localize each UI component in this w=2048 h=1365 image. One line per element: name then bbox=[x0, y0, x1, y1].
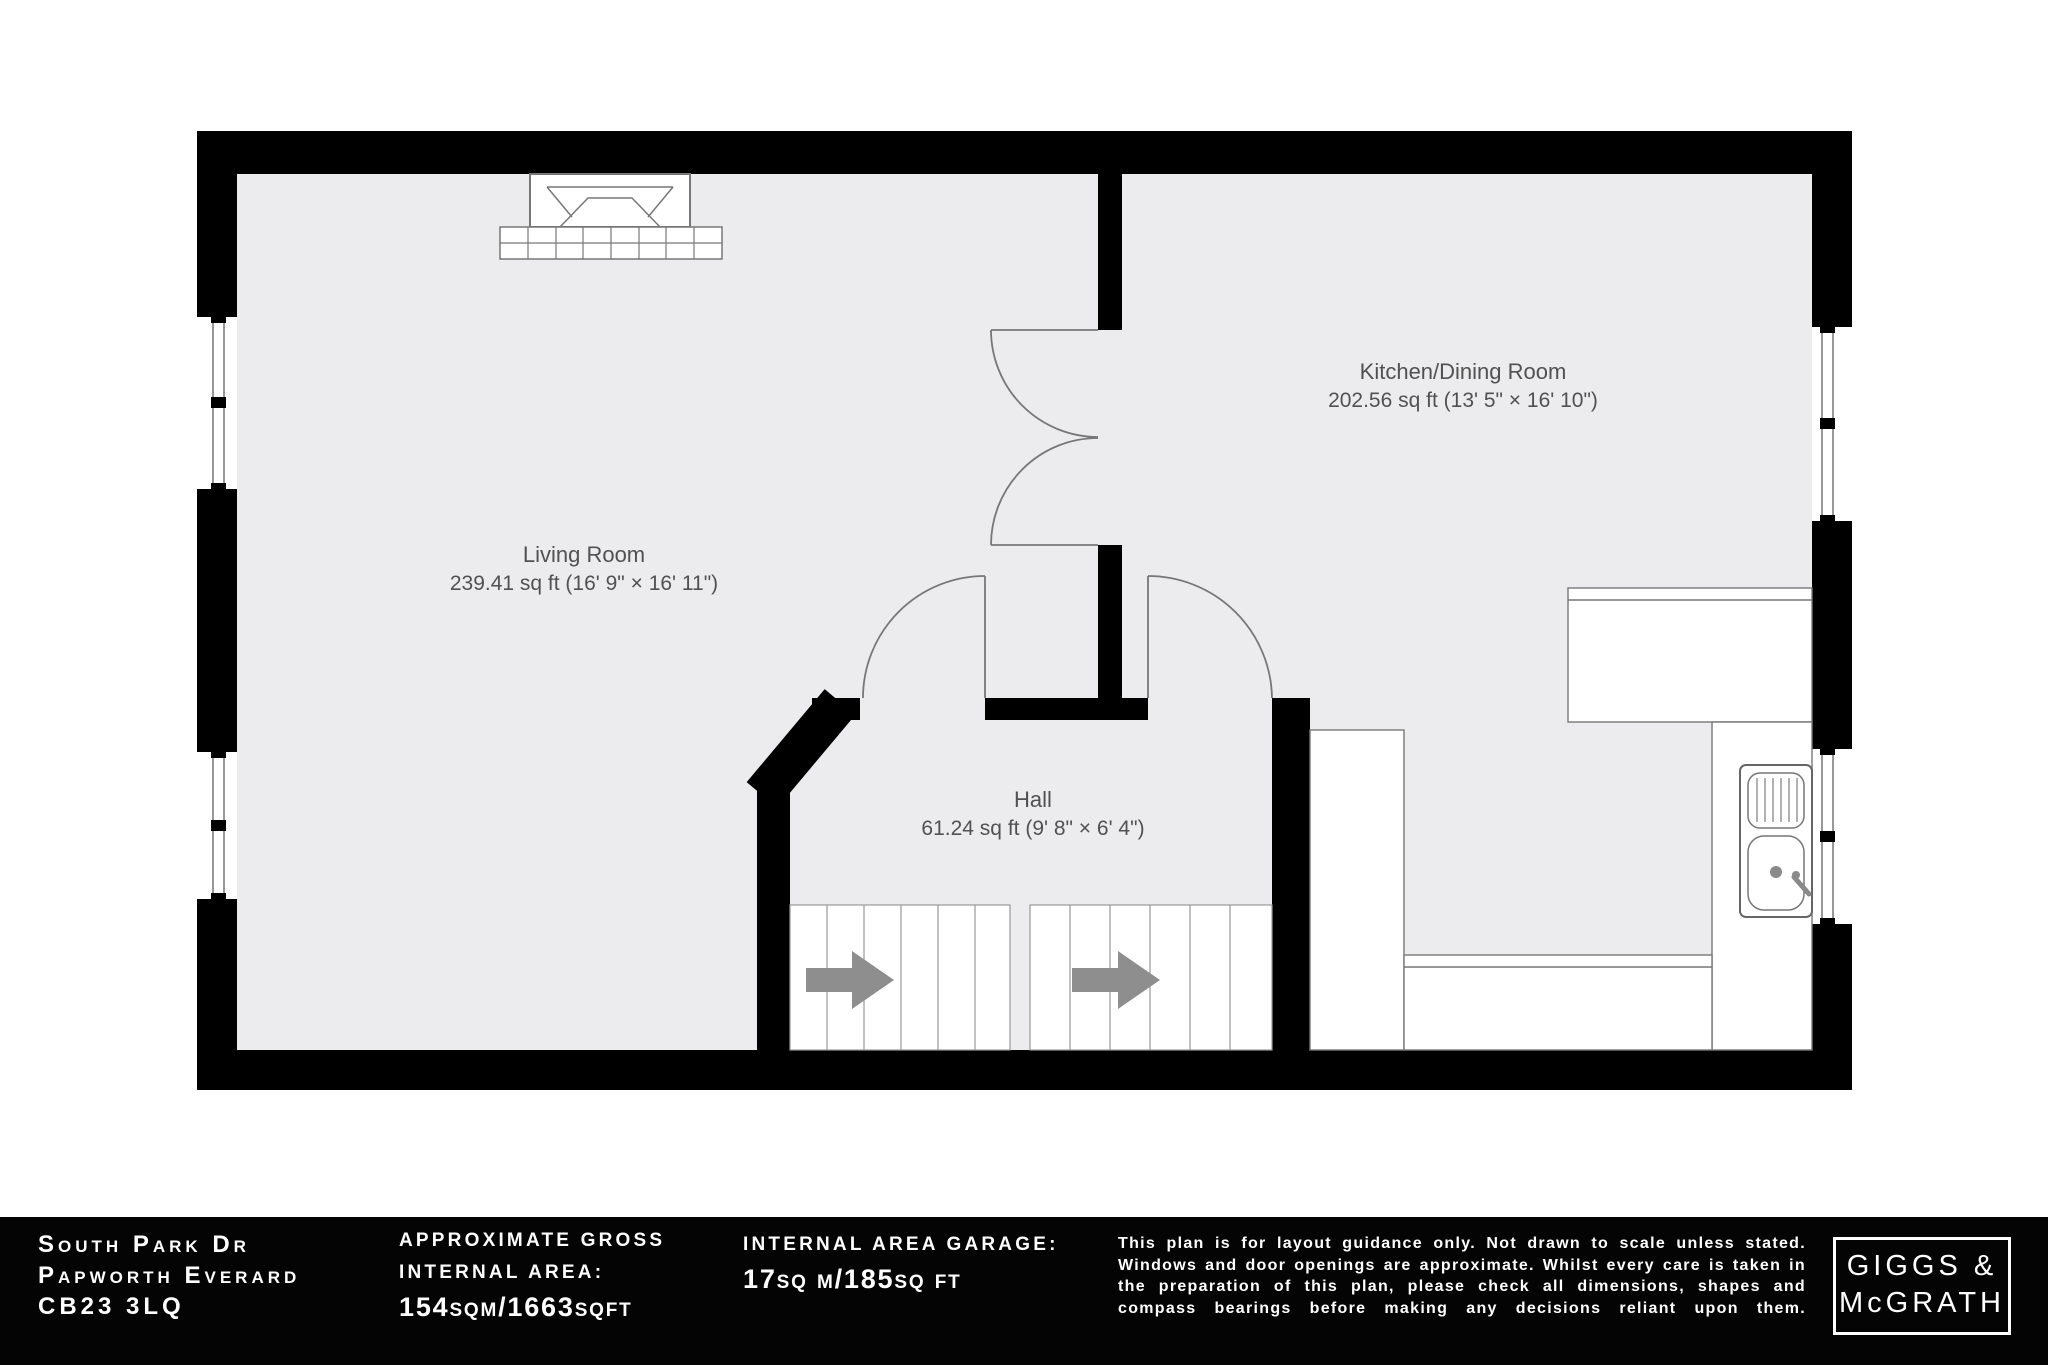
address-line: Papworth Everard bbox=[38, 1260, 300, 1291]
sink-icon bbox=[1740, 765, 1812, 917]
disclaimer-text: This plan is for layout guidance only. N… bbox=[1118, 1233, 1806, 1319]
gross-area-label: INTERNAL AREA: bbox=[399, 1257, 665, 1289]
logo-line: McGRATH bbox=[1836, 1285, 2008, 1322]
room-dims: 239.41 sq ft (16' 9" × 16' 11") bbox=[450, 572, 718, 595]
logo-box: GIGGS & McGRATH bbox=[1833, 1237, 2011, 1335]
room-name: Hall bbox=[1014, 787, 1052, 812]
room-dims: 61.24 sq ft (9' 8" × 6' 4") bbox=[921, 817, 1144, 840]
room-name: Living Room bbox=[523, 542, 645, 567]
window-icon bbox=[1812, 749, 1852, 924]
window-icon bbox=[197, 317, 237, 489]
gross-area-value: 154sqm/1663sqft bbox=[399, 1292, 665, 1323]
gross-area-block: APPROXIMATE GROSS INTERNAL AREA: 154sqm/… bbox=[399, 1225, 665, 1323]
floor-plan: Living Room 239.41 sq ft (16' 9" × 16' 1… bbox=[0, 0, 2048, 1215]
window-icon bbox=[197, 752, 237, 899]
logo-line: GIGGS & bbox=[1836, 1248, 2008, 1285]
gross-area-label: APPROXIMATE GROSS bbox=[399, 1225, 665, 1257]
address-line: South Park Dr bbox=[38, 1229, 300, 1260]
room-name: Kitchen/Dining Room bbox=[1360, 359, 1567, 384]
stairs bbox=[790, 905, 1272, 1050]
garage-area-block: INTERNAL AREA GARAGE: 17sq m/185sq ft bbox=[743, 1229, 1059, 1295]
info-bar: South Park Dr Papworth Everard CB23 3LQ … bbox=[0, 1217, 2048, 1365]
garage-area-label: INTERNAL AREA GARAGE: bbox=[743, 1229, 1059, 1261]
address-line: CB23 3LQ bbox=[38, 1291, 300, 1322]
fireplace-icon bbox=[500, 174, 722, 259]
address-block: South Park Dr Papworth Everard CB23 3LQ bbox=[38, 1229, 300, 1322]
room-dims: 202.56 sq ft (13' 5" × 16' 10") bbox=[1328, 389, 1598, 412]
window-icon bbox=[1812, 327, 1852, 521]
garage-area-value: 17sq m/185sq ft bbox=[743, 1264, 1059, 1295]
